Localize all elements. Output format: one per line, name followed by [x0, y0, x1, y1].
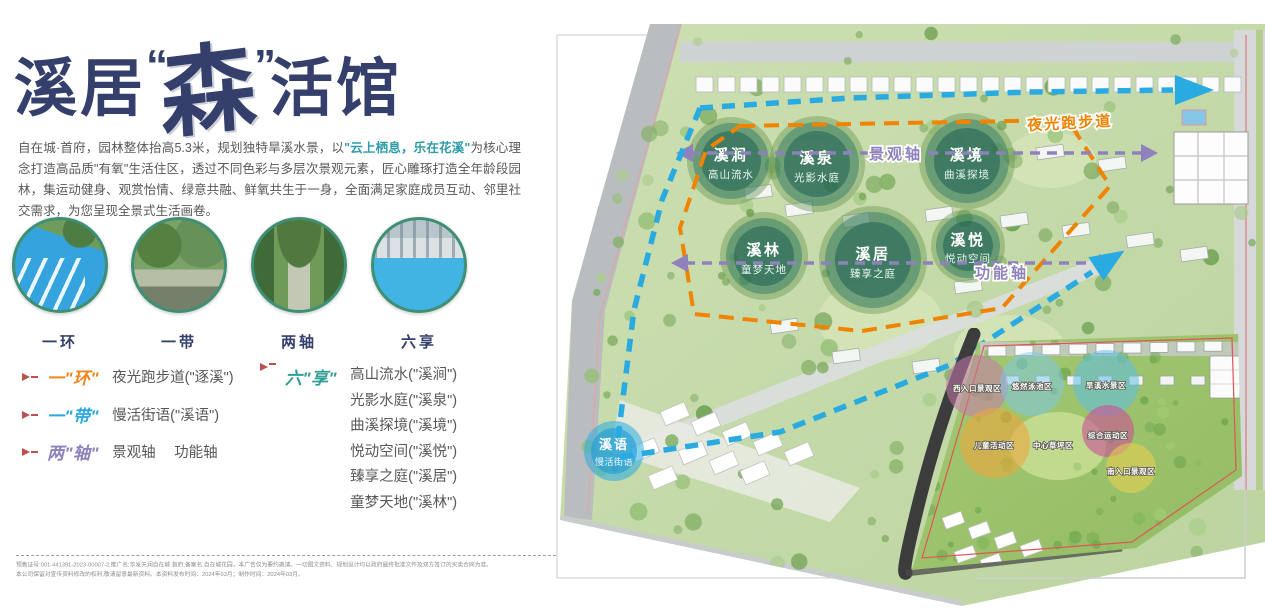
inset-area-map: 西入口景观区 悠然泳池区 旱溪水景区 儿童活动区 中心草坪区 综合运动区 南入口…	[880, 328, 1265, 611]
six-list-item: 臻享之庭("溪居")	[350, 465, 457, 491]
feature-photo-ring	[12, 217, 108, 313]
legend-item-axes: 两"轴" 景观轴 功能轴	[22, 439, 218, 464]
function-axis-label: 功能轴	[975, 264, 1029, 282]
legend-bullet-tail	[269, 363, 276, 365]
zone-subtitle: 童梦天地	[741, 263, 787, 276]
footer-divider	[16, 555, 561, 556]
inset-area-label: 西入口景观区	[953, 383, 1001, 393]
zone-name: 溪悦	[950, 231, 985, 249]
feature-photo-enjoy	[371, 217, 467, 313]
legend-item-six: 六"享" 高山流水("溪涧") 光影水庭("溪泉") 曲溪探境("溪境") 悦动…	[260, 363, 457, 516]
intro-text-before: 自在城·首府，园林整体抬高5.3米，规划独特旱溪水景，以	[18, 141, 344, 155]
feature-label-belt: 一带	[128, 331, 230, 352]
legend-bullet-icon	[22, 448, 30, 456]
legend-term-axes: 两"轴"	[47, 439, 99, 464]
zone-bubble-xilin: 溪林 童梦天地	[720, 212, 808, 300]
title-emphasis-character: 森	[157, 30, 258, 154]
six-list-item: 童梦天地("溪林")	[350, 491, 457, 517]
feature-label-ring: 一环	[9, 331, 111, 352]
title-suffix: 活馆	[270, 54, 402, 124]
footer-disclaimer: 预售证号:001-441391-2023-00007-2;推广名:华发天润自在城…	[16, 560, 567, 579]
feature-photo-axes	[251, 217, 347, 313]
legend-desc-ring: 夜光跑步道("逐溪")	[112, 366, 233, 387]
zone-subtitle: 悦动空间	[945, 252, 991, 265]
intro-highlight: "云上栖息，乐在花溪"	[344, 141, 470, 155]
zone-name: 溪林	[746, 241, 781, 259]
zone-bubble-xiquan: 溪泉 光影水庭	[769, 116, 865, 212]
zone-name: 溪居	[855, 245, 890, 263]
title-close-quote: ”	[254, 41, 270, 90]
inset-area-label: 悠然泳池区	[1011, 381, 1052, 391]
inset-area-label: 南入口景观区	[1107, 466, 1155, 476]
legend-term-belt: 一"带"	[47, 402, 99, 427]
legend-desc-axes: 景观轴 功能轴	[112, 441, 218, 462]
inset-area-label: 中心草坪区	[1033, 440, 1073, 450]
feature-label-enjoy: 六享	[368, 331, 470, 352]
landscape-axis-label: 景观轴	[869, 145, 923, 163]
six-list: 高山流水("溪涧") 光影水庭("溪泉") 曲溪探境("溪境") 悦动空间("溪…	[350, 363, 457, 516]
zone-bubble-xiyu: 溪语 慢活街语	[584, 421, 644, 481]
inset-area-label: 儿童活动区	[973, 440, 1014, 450]
zone-subtitle: 高山流水	[708, 168, 754, 181]
legend-bullet-icon	[22, 373, 30, 381]
zone-subtitle: 曲溪探境	[944, 168, 990, 181]
poster-canvas: 溪居“森”活馆 自在城·首府，园林整体抬高5.3米，规划独特旱溪水景，以"云上栖…	[0, 0, 1265, 611]
legend-bullet-tail	[31, 414, 38, 416]
zone-subtitle: 光影水庭	[794, 171, 840, 184]
feature-label-axes: 两轴	[248, 331, 350, 352]
footer-line-1: 预售证号:001-441391-2023-00007-2;推广名:华发天润自在城…	[16, 560, 567, 569]
six-list-item: 曲溪探境("溪境")	[350, 414, 457, 440]
zone-subtitle: 臻享之庭	[850, 267, 896, 280]
zone-name: 溪境	[949, 146, 984, 164]
street-zone-name: 溪语	[599, 437, 629, 452]
intro-paragraph: 自在城·首府，园林整体抬高5.3米，规划独特旱溪水景，以"云上栖息，乐在花溪"为…	[18, 138, 521, 222]
title-prefix: 溪居	[14, 54, 146, 124]
legend-bullet-icon	[260, 363, 268, 371]
legend-term-six: 六"享"	[285, 364, 337, 389]
legend-item-belt: 一"带" 慢活街语("溪语")	[22, 402, 219, 427]
legend-item-ring: 一"环" 夜光跑步道("逐溪")	[22, 364, 234, 389]
legend-term-ring: 一"环"	[47, 364, 99, 389]
legend-bullet-tail	[31, 451, 38, 453]
zone-bubble-xiju: 溪居 臻享之庭	[819, 206, 927, 314]
zone-bubble-xijing: 溪境 曲溪探境	[919, 113, 1015, 209]
inset-area-label: 旱溪水景区	[1086, 380, 1126, 390]
six-list-item: 高山流水("溪涧")	[350, 363, 457, 389]
six-list-item: 光影水庭("溪泉")	[350, 389, 457, 415]
zone-name: 溪涧	[713, 146, 748, 164]
legend-bullet-icon	[22, 411, 30, 419]
six-list-item: 悦动空间("溪悦")	[350, 440, 457, 466]
feature-photo-belt	[131, 217, 227, 313]
legend-bullet-tail	[31, 376, 38, 378]
legend-desc-belt: 慢活街语("溪语")	[112, 404, 219, 425]
footer-line-2: 本公司保留对宣传资料修改的权利,敬请留意最新资料。本资料发布时间：2024年03…	[16, 569, 567, 578]
inset-area-label: 综合运动区	[1088, 430, 1128, 440]
